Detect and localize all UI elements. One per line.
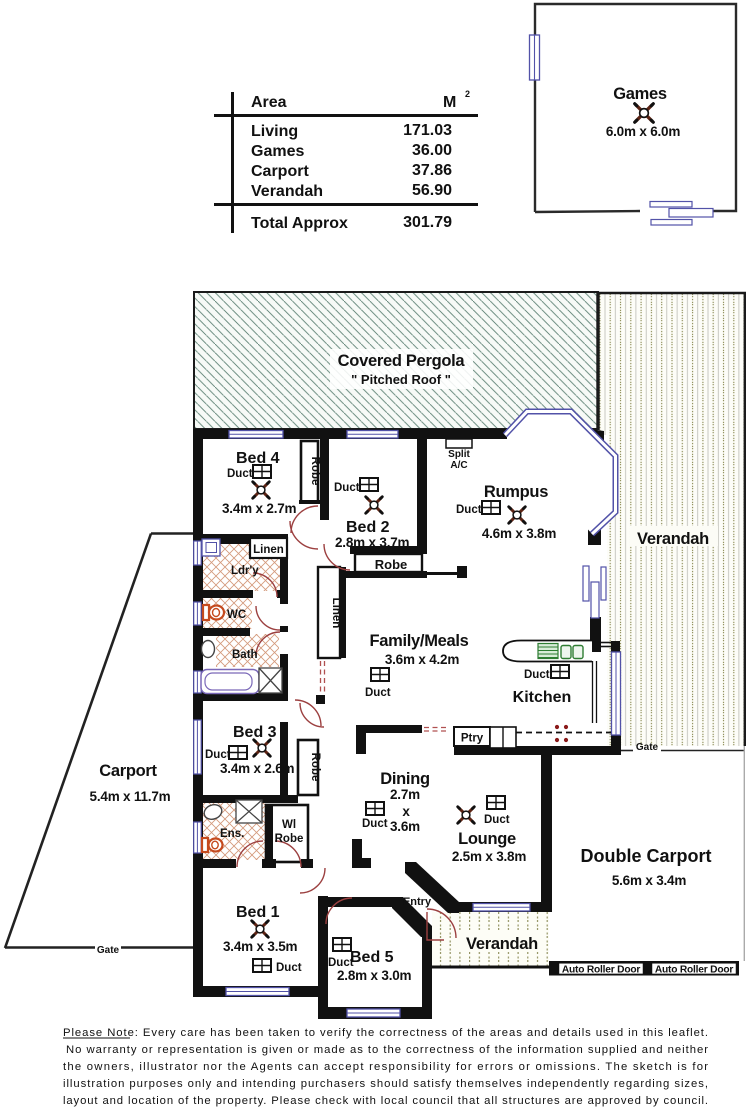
svg-text:2.5m x 3.8m: 2.5m x 3.8m: [452, 849, 527, 864]
svg-text:Duct: Duct: [362, 818, 388, 830]
svg-text:3.4m x 2.6m: 3.4m x 2.6m: [220, 761, 295, 776]
svg-text:Covered Pergola: Covered Pergola: [338, 352, 466, 370]
svg-text:171.03: 171.03: [403, 122, 452, 139]
svg-text:Split: Split: [448, 449, 470, 460]
svg-text:Please Note: Every care has: Please Note: Every care has been taken t…: [63, 1027, 708, 1039]
svg-text:x: x: [402, 804, 410, 819]
svg-text:Duct: Duct: [524, 669, 550, 681]
svg-text:Robe: Robe: [309, 753, 321, 782]
svg-text:Carport: Carport: [251, 163, 309, 180]
svg-text:" Pitched Roof ": " Pitched Roof ": [351, 372, 451, 387]
svg-text:Family/Meals: Family/Meals: [369, 632, 468, 650]
svg-text:Robe: Robe: [309, 457, 321, 486]
svg-text:Verandah: Verandah: [251, 183, 323, 200]
svg-text:Duct: Duct: [484, 814, 510, 826]
svg-text:Games: Games: [251, 143, 304, 160]
svg-text:5.4m x 11.7m: 5.4m x 11.7m: [90, 789, 171, 804]
svg-text:2.7m: 2.7m: [390, 787, 420, 802]
svg-text:illustration purposes only a: illustration purposes only and intending…: [63, 1078, 708, 1090]
svg-text:Auto Roller Door: Auto Roller Door: [562, 965, 641, 976]
svg-text:Verandah: Verandah: [637, 530, 709, 548]
svg-text:3.4m x 2.7m: 3.4m x 2.7m: [222, 501, 297, 516]
svg-text:Rumpus: Rumpus: [484, 483, 548, 501]
svg-text:Duct: Duct: [205, 749, 231, 761]
svg-text:Auto Roller Door: Auto Roller Door: [655, 965, 734, 976]
svg-text:No warranty or representation: No warranty or representation is given o…: [66, 1044, 708, 1056]
svg-text:Robe: Robe: [275, 833, 304, 845]
svg-text:Gate: Gate: [636, 742, 659, 753]
svg-text:the owners, illustrator nor: the owners, illustrator nor the Agents c…: [63, 1061, 708, 1073]
svg-text:Wl: Wl: [282, 819, 296, 831]
svg-text:Linen: Linen: [330, 598, 342, 629]
svg-text:Duct: Duct: [365, 687, 391, 699]
svg-text:Bed 5: Bed 5: [350, 949, 394, 966]
svg-text:Linen: Linen: [253, 544, 284, 556]
svg-text:Ptry: Ptry: [461, 733, 484, 745]
svg-text:37.86: 37.86: [412, 162, 452, 179]
svg-text:M: M: [443, 94, 456, 111]
svg-text:Double Carport: Double Carport: [580, 846, 711, 866]
svg-text:4.6m x 3.8m: 4.6m x 3.8m: [482, 526, 557, 541]
svg-text:Duct: Duct: [456, 504, 482, 516]
svg-text:Bed 2: Bed 2: [346, 519, 390, 536]
svg-text:2: 2: [465, 89, 470, 99]
svg-text:Gate: Gate: [97, 945, 120, 956]
svg-text:3.6m x 4.2m: 3.6m x 4.2m: [385, 652, 460, 667]
svg-text:Duct: Duct: [276, 962, 302, 974]
svg-text:layout and location of the: layout and location of the property. Ple…: [63, 1095, 708, 1107]
svg-text:Games: Games: [613, 85, 667, 103]
svg-text:Bath: Bath: [232, 649, 258, 661]
svg-text:2.8m x 3.7m: 2.8m x 3.7m: [335, 535, 410, 550]
svg-text:Area: Area: [251, 94, 287, 111]
svg-text:Carport: Carport: [99, 762, 157, 780]
svg-text:Entry: Entry: [403, 896, 432, 908]
svg-text:56.90: 56.90: [412, 182, 452, 199]
svg-text:301.79: 301.79: [403, 214, 452, 231]
svg-text:Kitchen: Kitchen: [513, 689, 572, 706]
svg-text:Living: Living: [251, 123, 298, 140]
svg-text:Robe: Robe: [375, 557, 408, 572]
svg-text:Duct: Duct: [334, 482, 360, 494]
svg-text:Lounge: Lounge: [458, 830, 516, 848]
svg-text:Duct: Duct: [227, 468, 253, 480]
svg-text:Ens.: Ens.: [220, 828, 244, 840]
svg-text:2.8m x 3.0m: 2.8m x 3.0m: [337, 968, 412, 983]
svg-text:Bed 1: Bed 1: [236, 904, 280, 921]
svg-text:36.00: 36.00: [412, 142, 452, 159]
svg-text:5.6m x 3.4m: 5.6m x 3.4m: [612, 873, 687, 888]
svg-text:Total Approx: Total Approx: [251, 215, 348, 232]
svg-text:3.4m x 3.5m: 3.4m x 3.5m: [223, 939, 298, 954]
svg-text:A/C: A/C: [450, 460, 467, 471]
svg-text:Ldr'y: Ldr'y: [231, 565, 259, 577]
svg-text:Verandah: Verandah: [466, 935, 538, 953]
svg-text:3.6m: 3.6m: [390, 819, 420, 834]
svg-text:Dining: Dining: [380, 770, 430, 788]
svg-text:WC: WC: [227, 609, 246, 621]
svg-text:6.0m x 6.0m: 6.0m x 6.0m: [606, 124, 681, 139]
